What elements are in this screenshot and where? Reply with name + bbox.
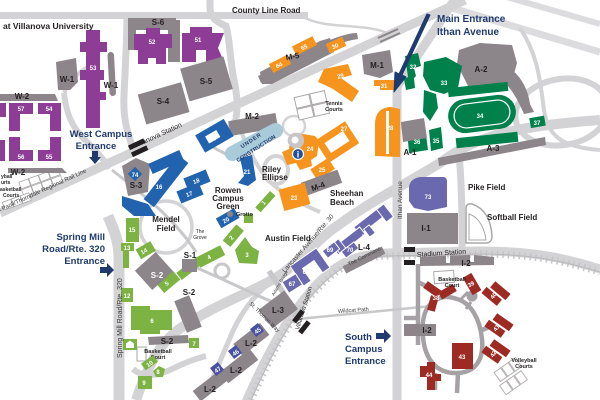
svg-text:Courts: Courts — [3, 193, 19, 199]
svg-text:Road/Rte. 320: Road/Rte. 320 — [42, 244, 105, 255]
svg-text:15: 15 — [129, 228, 136, 234]
svg-text:Softball Field: Softball Field — [487, 213, 537, 222]
svg-text:13: 13 — [124, 246, 131, 252]
svg-text:Pike Field: Pike Field — [468, 183, 505, 192]
svg-text:38: 38 — [433, 296, 440, 302]
svg-text:L-2: L-2 — [245, 339, 258, 348]
svg-text:35: 35 — [433, 139, 440, 145]
svg-text:County Line Road: County Line Road — [232, 6, 301, 15]
svg-text:Entrance: Entrance — [64, 256, 105, 267]
svg-text:27: 27 — [341, 127, 348, 133]
svg-text:M-1: M-1 — [370, 61, 384, 70]
svg-text:43: 43 — [459, 355, 466, 361]
svg-text:21: 21 — [244, 170, 251, 176]
svg-text:72: 72 — [381, 222, 388, 228]
svg-text:Ithan Avenue: Ithan Avenue — [397, 181, 404, 219]
svg-text:W-1: W-1 — [104, 81, 119, 90]
svg-text:S-1: S-1 — [184, 251, 197, 260]
svg-text:25: 25 — [319, 168, 326, 174]
svg-text:54: 54 — [46, 107, 53, 113]
svg-text:Spring Mill: Spring Mill — [56, 232, 105, 243]
svg-text:12: 12 — [124, 294, 131, 300]
svg-text:26: 26 — [354, 154, 361, 160]
svg-text:Field: Field — [157, 224, 176, 233]
svg-text:11: 11 — [126, 344, 133, 350]
svg-text:34: 34 — [477, 114, 484, 120]
svg-text:L-3: L-3 — [272, 306, 285, 315]
svg-text:36: 36 — [414, 140, 421, 146]
svg-text:i: i — [297, 150, 300, 160]
svg-text:Green: Green — [216, 202, 239, 211]
svg-text:68: 68 — [303, 270, 310, 276]
svg-text:L-2: L-2 — [204, 385, 217, 394]
svg-text:A-2: A-2 — [475, 65, 488, 74]
svg-text:Spring Mill Road/Rte. 320: Spring Mill Road/Rte. 320 — [117, 278, 124, 358]
svg-text:73: 73 — [425, 195, 432, 201]
svg-text:Grove: Grove — [193, 235, 207, 241]
svg-text:urts: urts — [1, 180, 11, 186]
svg-text:31: 31 — [381, 84, 388, 90]
svg-text:S-2: S-2 — [183, 288, 196, 297]
svg-text:67: 67 — [289, 282, 296, 288]
svg-text:Entrance: Entrance — [345, 356, 386, 367]
svg-text:Beach: Beach — [330, 198, 354, 207]
svg-text:I-2: I-2 — [461, 259, 471, 268]
svg-text:57: 57 — [18, 107, 25, 113]
svg-text:Mendel: Mendel — [152, 215, 180, 224]
svg-text:L-2: L-2 — [230, 366, 243, 375]
svg-text:23: 23 — [291, 196, 298, 202]
svg-text:Ellipse: Ellipse — [262, 173, 288, 182]
svg-text:A-1: A-1 — [404, 148, 417, 157]
svg-text:S-4: S-4 — [157, 97, 170, 106]
svg-text:55: 55 — [46, 155, 53, 161]
svg-text:51: 51 — [195, 38, 202, 44]
svg-text:Grotto: Grotto — [236, 212, 253, 218]
svg-text:37: 37 — [534, 121, 541, 127]
svg-text:S-2: S-2 — [151, 271, 164, 280]
svg-text:S-2: S-2 — [161, 337, 174, 346]
svg-text:W-2: W-2 — [11, 168, 26, 177]
svg-text:M-2: M-2 — [245, 112, 259, 121]
svg-text:44: 44 — [426, 373, 433, 379]
svg-text:I-1: I-1 — [421, 224, 431, 233]
svg-text:52: 52 — [149, 40, 156, 46]
svg-text:West Campus: West Campus — [70, 129, 133, 140]
svg-text:I-2: I-2 — [422, 326, 432, 335]
svg-text:A-3: A-3 — [487, 144, 500, 153]
svg-text:24: 24 — [307, 147, 314, 153]
svg-text:33: 33 — [441, 81, 448, 87]
svg-text:Courts: Courts — [515, 364, 533, 370]
svg-text:71: 71 — [362, 235, 369, 241]
svg-text:53: 53 — [90, 66, 97, 72]
svg-text:56: 56 — [18, 155, 25, 161]
svg-text:Campus: Campus — [345, 344, 382, 355]
svg-text:Austin Field: Austin Field — [265, 234, 311, 243]
svg-text:L-4: L-4 — [358, 243, 371, 252]
svg-text:Court: Court — [445, 283, 460, 289]
svg-text:74: 74 — [132, 173, 139, 179]
svg-text:S-6: S-6 — [152, 18, 165, 27]
svg-text:69: 69 — [327, 248, 334, 254]
svg-text:S-3: S-3 — [130, 181, 143, 190]
svg-text:Courts: Courts — [325, 107, 343, 113]
svg-text:at Villanova University: at Villanova University — [3, 21, 94, 31]
svg-text:28: 28 — [387, 126, 394, 132]
svg-text:Main Entrance: Main Entrance — [437, 14, 506, 25]
svg-text:16: 16 — [156, 185, 163, 191]
svg-text:32: 32 — [410, 65, 417, 71]
svg-text:Ithan Avenue: Ithan Avenue — [437, 27, 499, 38]
svg-text:South: South — [345, 332, 372, 343]
svg-text:W-1: W-1 — [60, 75, 75, 84]
svg-text:Entrance: Entrance — [76, 141, 117, 152]
svg-text:Sheehan: Sheehan — [330, 189, 363, 198]
svg-text:W-2: W-2 — [15, 92, 30, 101]
svg-text:S-5: S-5 — [200, 77, 213, 86]
svg-text:70: 70 — [347, 248, 354, 254]
